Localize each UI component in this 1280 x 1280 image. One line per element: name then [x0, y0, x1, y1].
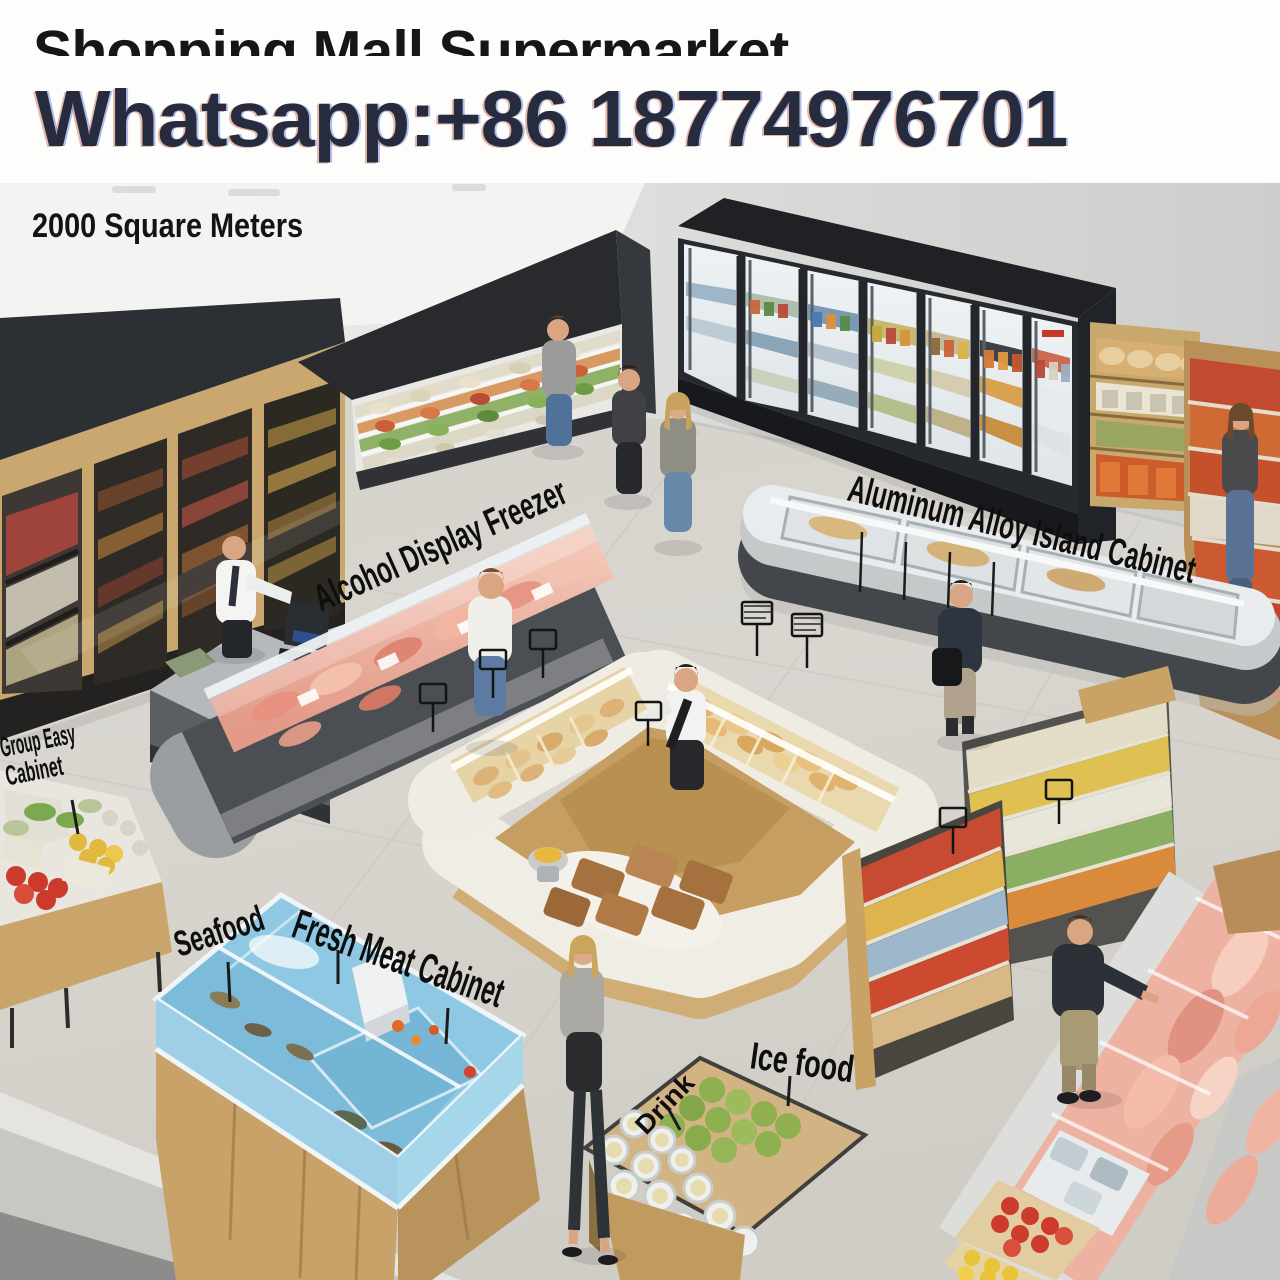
svg-text:2000 Square Meters: 2000 Square Meters [32, 207, 303, 245]
svg-text:Whatsapp:+86 18774976701: Whatsapp:+86 18774976701 [35, 74, 1067, 163]
